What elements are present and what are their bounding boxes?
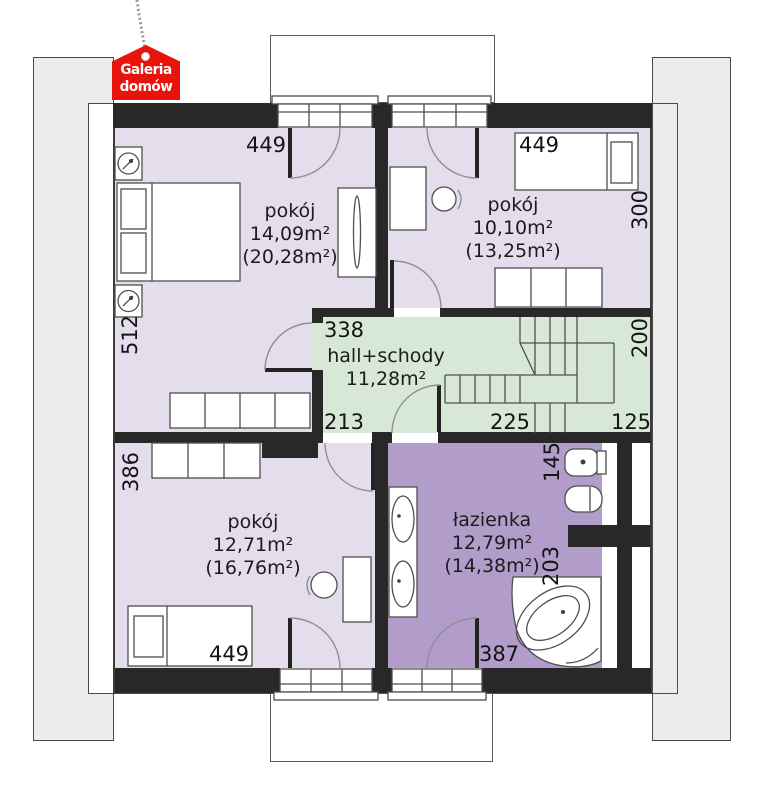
room-top-left-label: pokój 14,09m² (20,28m²) xyxy=(205,200,375,269)
dim-top-right-height: 300 xyxy=(628,180,652,240)
brand-line1: Galeria xyxy=(113,62,179,79)
room-area: 14,09m² xyxy=(205,223,375,246)
room-area: 12,71m² xyxy=(168,534,338,557)
room-floor-area: (16,76m²) xyxy=(168,557,338,580)
dim-top-right-width: 449 xyxy=(509,133,569,157)
room-area: 11,28m² xyxy=(301,368,471,391)
room-name: hall+schody xyxy=(301,345,471,368)
dim-hall-top: 338 xyxy=(314,318,374,342)
plan-drawing-layer xyxy=(0,0,767,799)
dim-bath-mid: 203 xyxy=(539,536,563,596)
room-name: łazienka xyxy=(407,509,577,532)
dim-hall-right: 125 xyxy=(601,410,661,434)
dim-top-left-width: 449 xyxy=(236,133,296,157)
room-floor-area: (20,28m²) xyxy=(205,246,375,269)
tag-hole xyxy=(141,52,150,61)
room-top-right-label: pokój 10,10m² (13,25m²) xyxy=(428,194,598,263)
brand-text: Galeria domów xyxy=(113,62,179,96)
dim-bottom-left-height: 386 xyxy=(119,442,143,502)
dim-top-left-height: 512 xyxy=(118,305,142,365)
room-name: pokój xyxy=(168,511,338,534)
dim-bath-width: 387 xyxy=(469,642,529,666)
floor-plan: pokój 14,09m² (20,28m²) pokój 10,10m² (1… xyxy=(0,0,767,799)
dim-bath-top: 145 xyxy=(540,432,564,492)
dim-bottom-left-width: 449 xyxy=(199,642,259,666)
room-area: 10,10m² xyxy=(428,217,598,240)
dim-hall-left: 213 xyxy=(314,410,374,434)
dim-hall-mid: 225 xyxy=(480,410,540,434)
room-name: pokój xyxy=(428,194,598,217)
brand-line2: domów xyxy=(113,79,179,96)
room-bottom-left-label: pokój 12,71m² (16,76m²) xyxy=(168,511,338,580)
room-name: pokój xyxy=(205,200,375,223)
dim-hall-height: 200 xyxy=(628,308,652,368)
room-floor-area: (13,25m²) xyxy=(428,240,598,263)
hanger-string xyxy=(137,0,145,48)
hall-label: hall+schody 11,28m² xyxy=(301,345,471,391)
